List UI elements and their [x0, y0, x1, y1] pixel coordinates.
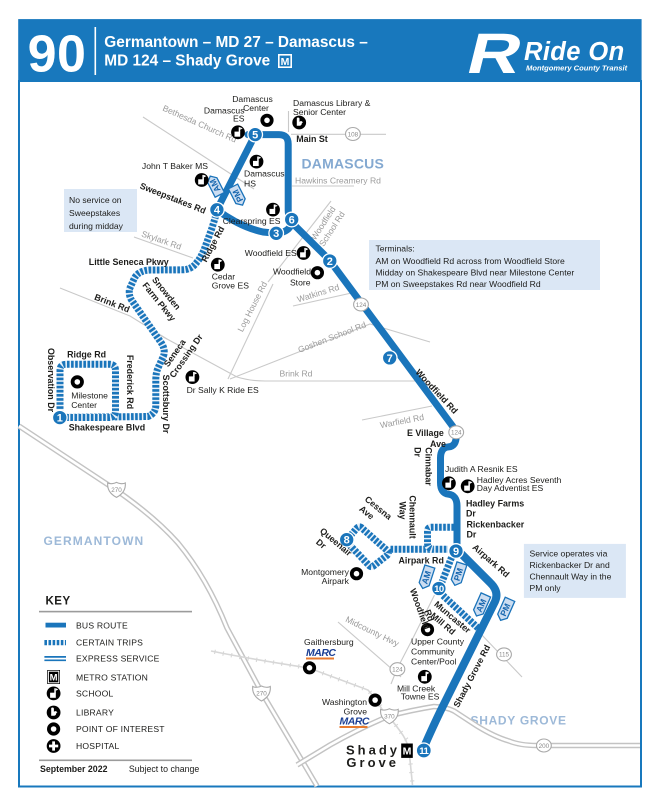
- svg-text:Airpark Rd: Airpark Rd: [399, 556, 444, 566]
- svg-text:9: 9: [453, 546, 459, 558]
- svg-text:Dr Sally K Ride ES: Dr Sally K Ride ES: [187, 385, 259, 395]
- svg-text:10: 10: [434, 584, 444, 595]
- svg-text:Midday on Shakespeare Blvd nea: Midday on Shakespeare Blvd near Mileston…: [376, 268, 575, 278]
- svg-text:Main St: Main St: [296, 134, 328, 144]
- svg-text:MD 124 – Shady Grove: MD 124 – Shady Grove: [104, 53, 270, 70]
- svg-text:Dr: Dr: [467, 530, 477, 540]
- svg-text:11: 11: [419, 746, 429, 757]
- svg-text:200: 200: [539, 743, 550, 750]
- svg-text:Little Seneca Pkwy: Little Seneca Pkwy: [89, 257, 169, 267]
- svg-text:No service on: No service on: [69, 195, 122, 205]
- svg-text:M: M: [50, 672, 58, 683]
- svg-text:Dr: Dr: [466, 509, 476, 519]
- svg-text:HOSPITAL: HOSPITAL: [76, 741, 119, 751]
- svg-text:6: 6: [289, 214, 295, 226]
- svg-text:Hadley Farms: Hadley Farms: [466, 499, 524, 509]
- svg-text:124: 124: [451, 430, 462, 437]
- svg-text:270: 270: [111, 487, 122, 494]
- svg-text:September 2022: September 2022: [40, 764, 108, 774]
- svg-text:during midday: during midday: [69, 221, 124, 231]
- svg-text:DAMASCUS: DAMASCUS: [302, 155, 385, 171]
- svg-text:SHADY GROVE: SHADY GROVE: [471, 713, 567, 727]
- svg-text:Germantown – MD 27 – Damascus: Germantown – MD 27 – Damascus –: [104, 34, 368, 51]
- svg-text:Damascus: Damascus: [244, 169, 285, 179]
- svg-text:John T Baker MS: John T Baker MS: [142, 161, 208, 171]
- svg-text:MARC: MARC: [340, 716, 370, 728]
- svg-text:GERMANTOWN: GERMANTOWN: [44, 534, 145, 548]
- svg-text:Judith A Resnik ES: Judith A Resnik ES: [445, 464, 518, 474]
- svg-text:3: 3: [273, 228, 279, 240]
- svg-text:Shakespeare Blvd: Shakespeare Blvd: [69, 423, 145, 433]
- svg-text:Towne ES: Towne ES: [401, 692, 440, 702]
- svg-text:Day Adventist ES: Day Adventist ES: [477, 483, 544, 493]
- svg-text:124: 124: [356, 302, 367, 309]
- svg-text:Woodfield: Woodfield: [273, 267, 311, 277]
- svg-text:Cinnabar: Cinnabar: [424, 447, 434, 486]
- svg-text:LIBRARY: LIBRARY: [76, 708, 114, 718]
- svg-text:Airpark: Airpark: [322, 576, 350, 586]
- svg-text:270: 270: [256, 691, 267, 698]
- svg-text:Woodfield ES: Woodfield ES: [245, 248, 297, 258]
- svg-text:7: 7: [387, 353, 393, 365]
- svg-text:Washington: Washington: [322, 697, 367, 707]
- svg-text:M: M: [281, 56, 290, 68]
- svg-text:Grove: Grove: [346, 755, 399, 770]
- svg-text:Center/Pool: Center/Pool: [411, 657, 456, 667]
- svg-text:EXPRESS SERVICE: EXPRESS SERVICE: [76, 653, 160, 663]
- svg-text:AM on Woodfield Rd across from: AM on Woodfield Rd across from Woodfield…: [376, 256, 566, 266]
- svg-text:BUS ROUTE: BUS ROUTE: [76, 620, 128, 630]
- svg-text:Montgomery County Transit: Montgomery County Transit: [526, 63, 628, 72]
- svg-text:108: 108: [348, 131, 359, 138]
- svg-text:90: 90: [28, 26, 87, 84]
- svg-text:Hawkins Creamery Rd: Hawkins Creamery Rd: [295, 176, 381, 186]
- svg-text:Store: Store: [290, 278, 311, 288]
- svg-text:Community: Community: [411, 647, 455, 657]
- svg-text:HS: HS: [244, 179, 256, 189]
- svg-text:1: 1: [57, 413, 63, 425]
- svg-text:Senior Center: Senior Center: [293, 107, 346, 117]
- svg-text:124: 124: [392, 667, 403, 674]
- svg-text:Chennault Way in the: Chennault Way in the: [530, 571, 612, 581]
- svg-text:Rickenbacker: Rickenbacker: [467, 520, 525, 530]
- svg-text:115: 115: [499, 652, 510, 659]
- svg-text:POINT OF INTEREST: POINT OF INTEREST: [76, 724, 165, 734]
- svg-text:5: 5: [252, 130, 258, 142]
- svg-text:Chennault: Chennault: [408, 495, 418, 538]
- svg-text:Center: Center: [71, 400, 97, 410]
- svg-text:Ride On: Ride On: [524, 38, 625, 66]
- svg-text:Service operates via: Service operates via: [530, 548, 608, 558]
- svg-text:2: 2: [327, 256, 333, 268]
- svg-text:E Village: E Village: [407, 428, 444, 438]
- svg-text:370: 370: [384, 714, 395, 721]
- svg-text:Ridge Rd: Ridge Rd: [67, 350, 106, 360]
- svg-text:4: 4: [214, 205, 221, 217]
- svg-text:KEY: KEY: [46, 596, 71, 608]
- svg-text:Brink Rd: Brink Rd: [280, 369, 313, 379]
- svg-text:Terminals:: Terminals:: [376, 244, 415, 254]
- svg-text:METRO STATION: METRO STATION: [76, 672, 148, 682]
- svg-text:PM only: PM only: [530, 583, 562, 593]
- svg-text:Gaithersburg: Gaithersburg: [304, 637, 354, 647]
- svg-text:Grove ES: Grove ES: [212, 281, 250, 291]
- svg-text:SCHOOL: SCHOOL: [76, 688, 114, 698]
- svg-text:Frederick Rd: Frederick Rd: [125, 355, 135, 409]
- svg-text:ES: ES: [233, 114, 245, 124]
- svg-text:Subject to change: Subject to change: [129, 764, 200, 774]
- svg-text:MARC: MARC: [306, 647, 336, 659]
- svg-text:Clearspring ES: Clearspring ES: [223, 216, 281, 226]
- svg-text:Dr: Dr: [413, 447, 423, 457]
- svg-text:Way: Way: [398, 502, 408, 520]
- svg-text:Upper County: Upper County: [411, 636, 465, 646]
- svg-text:Scottsbury Dr: Scottsbury Dr: [161, 375, 171, 434]
- svg-text:CERTAIN TRIPS: CERTAIN TRIPS: [76, 637, 143, 647]
- svg-text:Center: Center: [243, 103, 269, 113]
- svg-text:Rickenbacker Dr and: Rickenbacker Dr and: [530, 560, 610, 570]
- svg-text:Observation Dr: Observation Dr: [46, 348, 56, 413]
- svg-text:PM on Sweepstakes Rd near Wood: PM on Sweepstakes Rd near Woodfield Rd: [376, 279, 541, 289]
- svg-text:Sweepstakes: Sweepstakes: [69, 208, 120, 218]
